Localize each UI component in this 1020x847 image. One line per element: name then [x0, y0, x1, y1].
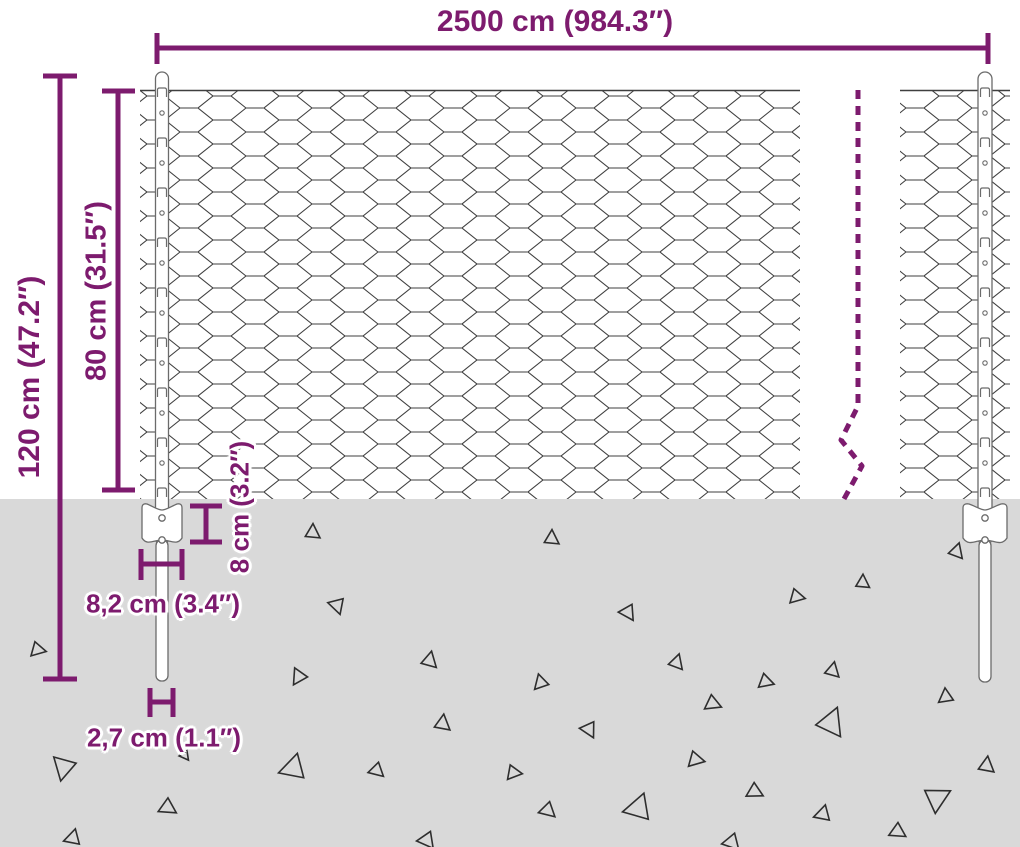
post-hole — [983, 211, 987, 215]
plate-hole — [159, 515, 165, 521]
post-hole — [983, 261, 987, 265]
fence-dimension-diagram: 2500 cm (984.3″) 120 cm (47.2″) 80 cm (3… — [0, 0, 1020, 847]
wire-clip-hook — [158, 488, 167, 497]
wire-clip-hook — [981, 138, 990, 147]
wire-clip-hook — [158, 288, 167, 297]
wire-clip-hook — [158, 188, 167, 197]
wire-mesh-right — [900, 90, 1010, 499]
wire-clip-hook — [158, 138, 167, 147]
diagram-drawing — [0, 0, 1020, 847]
ground-area — [0, 499, 1020, 847]
post-hole — [160, 461, 164, 465]
wire-clip-hook — [981, 188, 990, 197]
post-hole — [160, 411, 164, 415]
post-hole — [983, 311, 987, 315]
dimension-total-width-label: 2500 cm (984.3″) — [437, 5, 673, 39]
wire-clip-hook — [158, 388, 167, 397]
wire-clip-hook — [981, 338, 990, 347]
wire-clip-hook — [158, 438, 167, 447]
dimension-mesh-height-label: 80 cm (31.5″) — [81, 201, 114, 381]
post-hole — [160, 261, 164, 265]
wire-clip-hook — [981, 388, 990, 397]
post-hole — [983, 411, 987, 415]
wire-clip-hook — [158, 238, 167, 247]
wire-clip-hook — [981, 488, 990, 497]
post-hole — [983, 161, 987, 165]
dimension-post-height-label: 120 cm (47.2″) — [13, 276, 47, 479]
post-hole — [160, 311, 164, 315]
wire-clip-hook — [981, 438, 990, 447]
dimension-plate-width-label: 8,2 cm (3.4″) — [86, 589, 240, 620]
post-hole — [160, 361, 164, 365]
wire-clip-hook — [981, 288, 990, 297]
post-hole — [160, 161, 164, 165]
plate-hole — [159, 537, 165, 543]
wire-clip-hook — [158, 338, 167, 347]
wire-clip-hook — [981, 88, 990, 97]
wire-clip-hook — [981, 238, 990, 247]
dimension-plate-height-label: 8 cm (3.2″) — [225, 441, 256, 573]
post-hole — [160, 111, 164, 115]
wire-clip-hook — [158, 88, 167, 97]
post-right-spike — [979, 540, 991, 682]
post-hole — [160, 211, 164, 215]
plate-hole — [982, 537, 988, 543]
dimension-post-diameter-label: 2,7 cm (1.1″) — [87, 723, 241, 754]
fence-break-dashed-line — [841, 90, 862, 499]
wire-mesh-main — [140, 90, 800, 499]
plate-hole — [982, 515, 988, 521]
post-hole — [983, 111, 987, 115]
post-hole — [983, 361, 987, 365]
post-hole — [983, 461, 987, 465]
